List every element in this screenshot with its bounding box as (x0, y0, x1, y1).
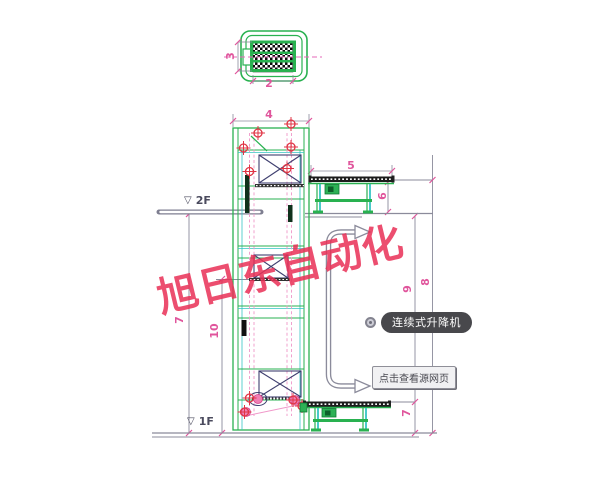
sprocket (254, 395, 263, 404)
dim-floor2-height-left: 7 (173, 312, 187, 328)
tower-elevation (233, 117, 312, 430)
cad-linework (0, 0, 600, 488)
dim-upper-conveyor-length: 5 (343, 159, 359, 173)
drawing-canvas: 2 3 4 5 6 7 10 9 8 7 ▽ 2F ▽ 1F 连续式升降机 点击… (0, 0, 600, 488)
dim-plan-depth: 3 (224, 48, 238, 64)
datum-triangle-icon: ▽ (184, 195, 192, 206)
view-source-link[interactable]: 点击查看源网页 (372, 366, 456, 389)
datum-triangle-icon: ▽ (187, 416, 195, 427)
dim-plan-width: 2 (261, 77, 277, 91)
floor1-text: 1F (199, 415, 214, 428)
dim-upper-conveyor-height: 6 (376, 188, 390, 204)
dim-floor2-to-lower-conveyor: 9 (401, 281, 415, 297)
carrier-bottom (259, 371, 301, 397)
floor2-text: 2F (196, 194, 211, 207)
arrowhead-top (355, 226, 370, 239)
map-marker-icon (365, 317, 376, 328)
dim-tower-width: 4 (261, 108, 277, 122)
dim-tower-inner-height: 10 (208, 323, 222, 339)
dim-overall-height: 8 (419, 274, 433, 290)
dim-lower-conveyor-height: 7 (400, 405, 414, 421)
product-name-badge[interactable]: 连续式升降机 (381, 312, 472, 333)
lower-conveyor (300, 401, 391, 432)
floor-label-1f: ▽ 1F (187, 415, 214, 428)
arrowhead-bottom (355, 380, 370, 393)
map-marker-dot (369, 321, 372, 324)
floor-label-2f: ▽ 2F (184, 194, 211, 207)
flow-arrow (329, 226, 371, 393)
